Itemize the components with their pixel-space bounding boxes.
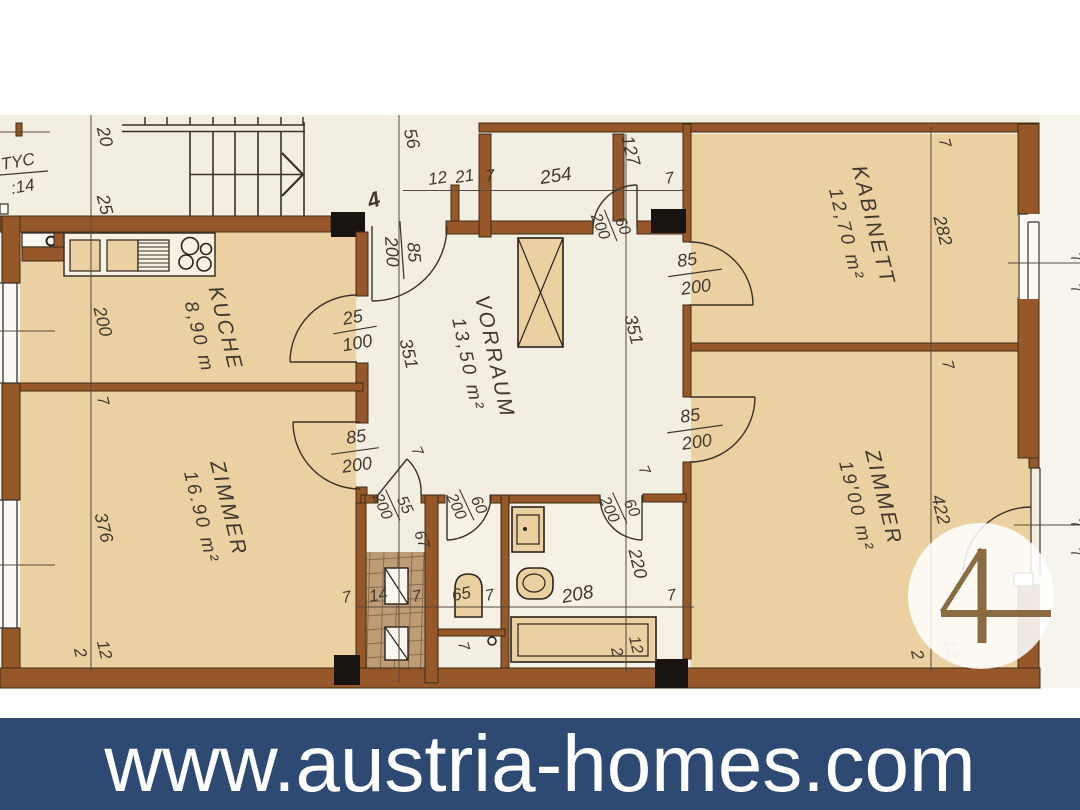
svg-text:85: 85 — [345, 425, 369, 448]
svg-text:12: 12 — [427, 167, 449, 189]
svg-text:200: 200 — [340, 453, 374, 477]
svg-text:200: 200 — [381, 235, 403, 267]
svg-text:21: 21 — [453, 166, 475, 188]
svg-text:200: 200 — [679, 275, 713, 299]
svg-text::14: :14 — [9, 175, 36, 198]
svg-text:85: 85 — [403, 241, 424, 263]
svg-text:65: 65 — [450, 583, 472, 605]
svg-text:85: 85 — [676, 248, 700, 271]
svg-text:14: 14 — [367, 584, 389, 606]
svg-text:85: 85 — [679, 404, 703, 427]
svg-text:200: 200 — [680, 430, 714, 454]
